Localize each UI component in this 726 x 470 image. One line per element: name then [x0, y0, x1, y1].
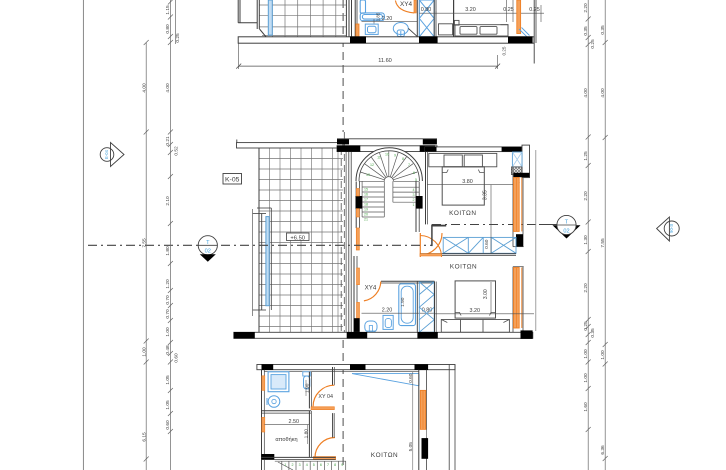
- svg-text:4: 4: [413, 188, 415, 192]
- svg-text:4: 4: [306, 463, 308, 467]
- svg-text:6: 6: [320, 463, 322, 467]
- svg-text:10: 10: [385, 153, 389, 157]
- svg-text:9: 9: [341, 463, 343, 467]
- svg-text:2: 2: [292, 463, 294, 467]
- svg-text:0.25: 0.25: [502, 46, 507, 55]
- svg-text:17: 17: [364, 198, 368, 202]
- svg-text:5: 5: [313, 463, 315, 467]
- svg-text:0.35: 0.35: [600, 25, 606, 35]
- svg-text:11.60: 11.60: [378, 58, 392, 64]
- svg-text:6.15: 6.15: [141, 432, 147, 442]
- svg-text:4.00: 4.00: [165, 83, 171, 93]
- svg-text:21: 21: [364, 218, 368, 222]
- svg-text:0.48: 0.48: [165, 345, 171, 355]
- svg-text:0.70: 0.70: [165, 295, 171, 305]
- svg-text:1.00: 1.00: [583, 373, 589, 383]
- svg-text:0.25: 0.25: [503, 7, 514, 13]
- svg-text:2.50: 2.50: [289, 419, 300, 425]
- svg-text:7.55: 7.55: [600, 238, 606, 248]
- svg-text:0.80: 0.80: [165, 24, 171, 34]
- svg-text:T: T: [565, 219, 569, 225]
- svg-text:3.35: 3.35: [483, 190, 489, 200]
- svg-text:E-06: E-06: [669, 224, 674, 234]
- svg-text:1.60: 1.60: [583, 402, 589, 412]
- svg-text:0.25: 0.25: [175, 33, 181, 43]
- svg-text:KOITΩN: KOITΩN: [371, 452, 398, 459]
- svg-text:3: 3: [299, 463, 301, 467]
- svg-text:6.36: 6.36: [600, 445, 606, 455]
- svg-text:7: 7: [408, 163, 410, 167]
- svg-text:19: 19: [364, 208, 368, 212]
- svg-text:0.35: 0.35: [583, 26, 589, 36]
- svg-text:5.05: 5.05: [408, 442, 414, 452]
- svg-text:0.60: 0.60: [408, 373, 414, 383]
- svg-text:3: 3: [413, 193, 415, 197]
- svg-text:8: 8: [334, 463, 336, 467]
- svg-text:KOITΩN: KOITΩN: [449, 210, 476, 217]
- svg-text:0.60: 0.60: [174, 353, 180, 363]
- svg-text:1.30: 1.30: [583, 235, 589, 245]
- svg-text:αποθήκη: αποθήκη: [275, 436, 297, 443]
- svg-text:16: 16: [364, 193, 368, 197]
- svg-text:XY4: XY4: [400, 1, 413, 8]
- svg-text:12: 12: [370, 163, 374, 167]
- svg-text:1.00: 1.00: [141, 347, 147, 357]
- svg-text:3.80: 3.80: [462, 179, 473, 185]
- svg-text:2.20: 2.20: [382, 308, 393, 314]
- svg-text:0.25: 0.25: [583, 321, 589, 331]
- svg-text:0.25: 0.25: [590, 39, 596, 49]
- svg-text:KOITΩN: KOITΩN: [450, 264, 477, 271]
- svg-text:0.60: 0.60: [484, 239, 490, 249]
- svg-text:E-04: E-04: [104, 149, 109, 159]
- svg-text:2: 2: [413, 198, 415, 202]
- svg-text:6: 6: [413, 171, 415, 175]
- svg-text:1: 1: [413, 203, 415, 207]
- svg-text:1.15: 1.15: [165, 5, 171, 15]
- svg-text:1.25: 1.25: [583, 151, 589, 161]
- svg-text:1.00: 1.00: [165, 327, 171, 337]
- svg-text:K-05: K-05: [225, 177, 240, 184]
- svg-text:XY4: XY4: [365, 285, 377, 292]
- svg-text:7: 7: [327, 463, 329, 467]
- svg-text:0.52: 0.52: [174, 146, 180, 156]
- svg-text:0.35: 0.35: [590, 328, 596, 338]
- svg-text:2.20: 2.20: [583, 283, 589, 293]
- svg-text:4.00: 4.00: [141, 83, 147, 93]
- svg-text:5: 5: [415, 178, 417, 182]
- svg-text:2.20: 2.20: [382, 16, 393, 22]
- svg-text:2.10: 2.10: [165, 196, 171, 206]
- svg-text:0.60: 0.60: [165, 420, 171, 430]
- svg-text:1.85: 1.85: [376, 12, 381, 21]
- svg-text:1.00: 1.00: [583, 349, 589, 359]
- svg-text:1.80: 1.80: [165, 246, 171, 256]
- svg-text:4.00: 4.00: [600, 88, 606, 98]
- svg-text:4.00: 4.00: [583, 88, 589, 98]
- svg-text:1.90: 1.90: [400, 297, 406, 307]
- svg-text:0.80: 0.80: [421, 7, 432, 13]
- svg-text:13: 13: [366, 173, 370, 177]
- svg-text:2.20: 2.20: [583, 191, 589, 201]
- svg-text:9: 9: [394, 154, 396, 158]
- svg-text:20: 20: [364, 213, 368, 217]
- svg-text:7.55: 7.55: [141, 238, 147, 248]
- svg-text:11: 11: [377, 156, 381, 160]
- svg-text:2.20: 2.20: [583, 3, 589, 13]
- svg-text:+6.50: +6.50: [290, 235, 305, 241]
- svg-text:T: T: [206, 240, 210, 246]
- svg-text:02: 02: [205, 249, 211, 255]
- svg-text:1.00: 1.00: [600, 350, 606, 360]
- svg-text:3.20: 3.20: [470, 308, 481, 314]
- svg-text:1: 1: [284, 463, 286, 467]
- svg-text:0.21: 0.21: [165, 136, 171, 146]
- svg-text:8: 8: [402, 157, 404, 161]
- svg-text:1.20: 1.20: [165, 279, 171, 289]
- svg-text:XY 04: XY 04: [318, 394, 333, 400]
- svg-text:02: 02: [563, 228, 569, 234]
- svg-text:1.80: 1.80: [304, 429, 310, 439]
- svg-text:1.05: 1.05: [165, 400, 171, 410]
- svg-text:1.05: 1.05: [165, 375, 171, 385]
- svg-text:0.70: 0.70: [165, 309, 171, 319]
- svg-text:15: 15: [364, 188, 368, 192]
- svg-text:3.20: 3.20: [465, 7, 476, 13]
- svg-text:3.00: 3.00: [483, 289, 489, 299]
- svg-text:18: 18: [364, 203, 368, 207]
